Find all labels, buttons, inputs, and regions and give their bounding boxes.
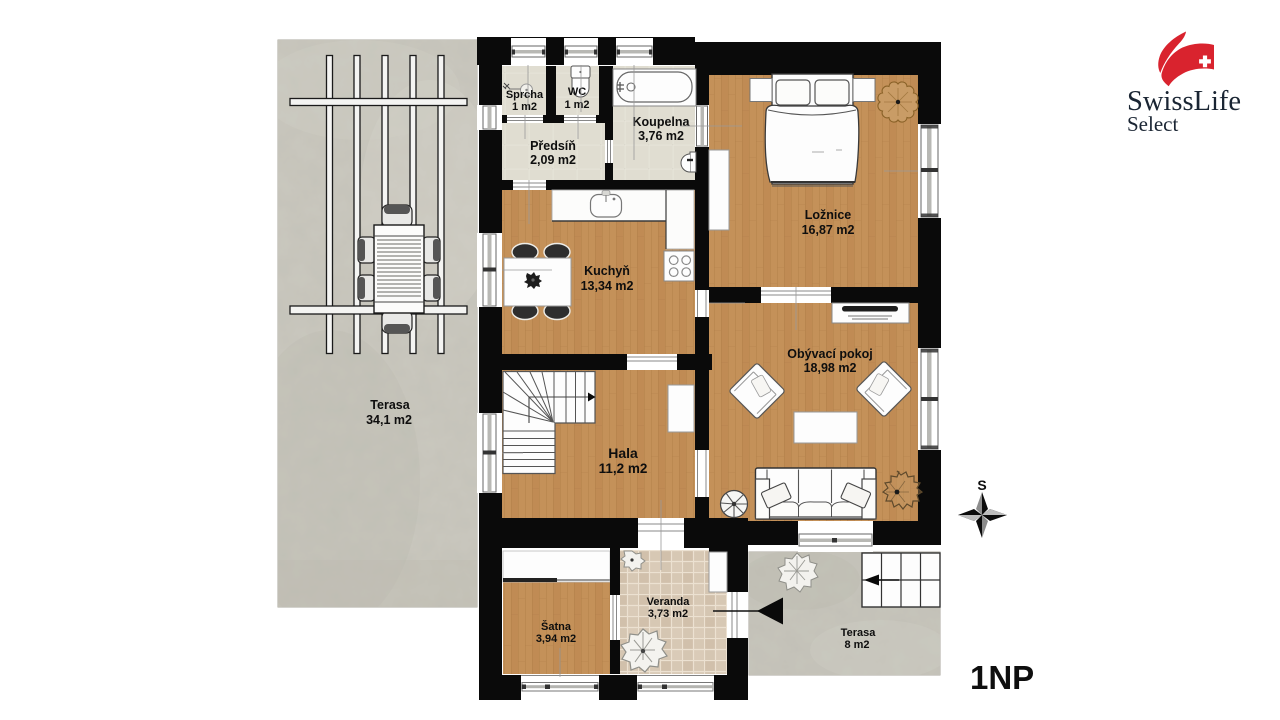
svg-text:8 m2: 8 m2 — [844, 639, 869, 651]
svg-text:Ložnice: Ložnice — [805, 208, 852, 222]
svg-text:3,76 m2: 3,76 m2 — [638, 129, 684, 143]
svg-text:3,94 m2: 3,94 m2 — [536, 633, 576, 645]
svg-text:18,98 m2: 18,98 m2 — [804, 361, 857, 375]
svg-text:1 m2: 1 m2 — [564, 99, 589, 111]
svg-text:S: S — [977, 477, 986, 493]
svg-text:Veranda: Veranda — [647, 596, 691, 608]
svg-text:13,34 m2: 13,34 m2 — [581, 279, 634, 293]
svg-text:Select: Select — [1127, 112, 1178, 136]
svg-text:34,1 m2: 34,1 m2 — [366, 413, 412, 427]
svg-text:2,09 m2: 2,09 m2 — [530, 153, 576, 167]
svg-text:Terasa: Terasa — [841, 627, 877, 639]
svg-text:16,87 m2: 16,87 m2 — [802, 223, 855, 237]
svg-text:Terasa: Terasa — [370, 398, 410, 412]
svg-text:Koupelna: Koupelna — [633, 115, 691, 129]
svg-text:1 m2: 1 m2 — [512, 101, 537, 113]
svg-text:Obývací pokoj: Obývací pokoj — [787, 347, 872, 361]
svg-text:Kuchyň: Kuchyň — [584, 264, 630, 278]
svg-text:1NP: 1NP — [970, 659, 1034, 696]
svg-text:Předsíň: Předsíň — [530, 139, 576, 153]
svg-text:Sprcha: Sprcha — [506, 89, 544, 101]
svg-text:WC: WC — [568, 86, 586, 98]
svg-text:11,2 m2: 11,2 m2 — [599, 461, 648, 476]
svg-text:3,73 m2: 3,73 m2 — [648, 608, 688, 620]
svg-text:Hala: Hala — [608, 445, 638, 461]
svg-text:Šatna: Šatna — [541, 620, 572, 633]
